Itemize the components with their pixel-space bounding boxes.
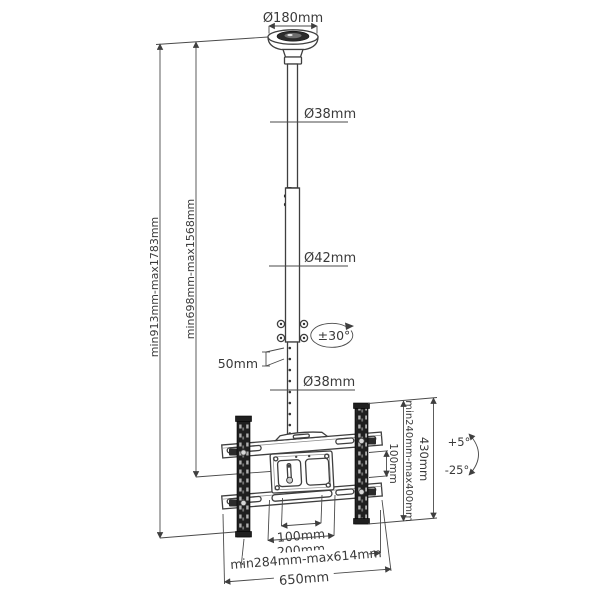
crossbar-length-label: 650mm (279, 570, 330, 589)
rail-length-label: 430mm (417, 437, 431, 481)
mount-diagram: Ø180mm Ø38mm (0, 0, 600, 600)
upper-pole-diameter-label: Ø38mm (304, 107, 356, 122)
ceiling-plate (268, 30, 318, 64)
tilt-down-label: -25° (445, 463, 470, 477)
swivel-range-label: ±30° (318, 328, 351, 343)
plate-diameter-label: Ø180mm (263, 11, 323, 26)
dim-hole-spacing: 50mm (218, 348, 284, 371)
lower-pole-diameter-label: Ø38mm (303, 375, 355, 390)
dim-crossbar-gap: 100mm (369, 443, 399, 484)
tilt-up-label: +5° (448, 435, 471, 449)
plate-neck (283, 50, 303, 58)
dim-lower-pole: Ø38mm (270, 375, 355, 390)
dim-rail-length: 430mm (417, 398, 434, 519)
overall-height-label: min913mm-max1783mm (148, 217, 161, 358)
middle-pole-diameter-label: Ø42mm (304, 251, 356, 266)
swivel-indicator: ±30° (311, 323, 354, 348)
tilt-indicator: +5° -25° (445, 434, 479, 477)
dim-upper-pole: Ø38mm (270, 107, 356, 122)
hole-spacing-label: 50mm (218, 356, 258, 371)
middle-pole (286, 188, 300, 342)
central-mount-plate (270, 451, 334, 493)
plate-collar (285, 57, 302, 64)
upper-pole (288, 64, 298, 188)
dim-middle-pole: Ø42mm (269, 251, 356, 266)
pole-height-label: min698mm-max1568mm (184, 199, 197, 340)
left-vesa-rail (229, 416, 252, 537)
technical-drawing-canvas: Ø180mm Ø38mm (0, 0, 600, 600)
vesa-height-label: min240mm-max400mm (403, 400, 414, 521)
crossbar-gap-label: 100mm (387, 443, 399, 484)
dim-pole-height: min698mm-max1568mm (184, 42, 290, 477)
right-vesa-rail (354, 403, 377, 524)
